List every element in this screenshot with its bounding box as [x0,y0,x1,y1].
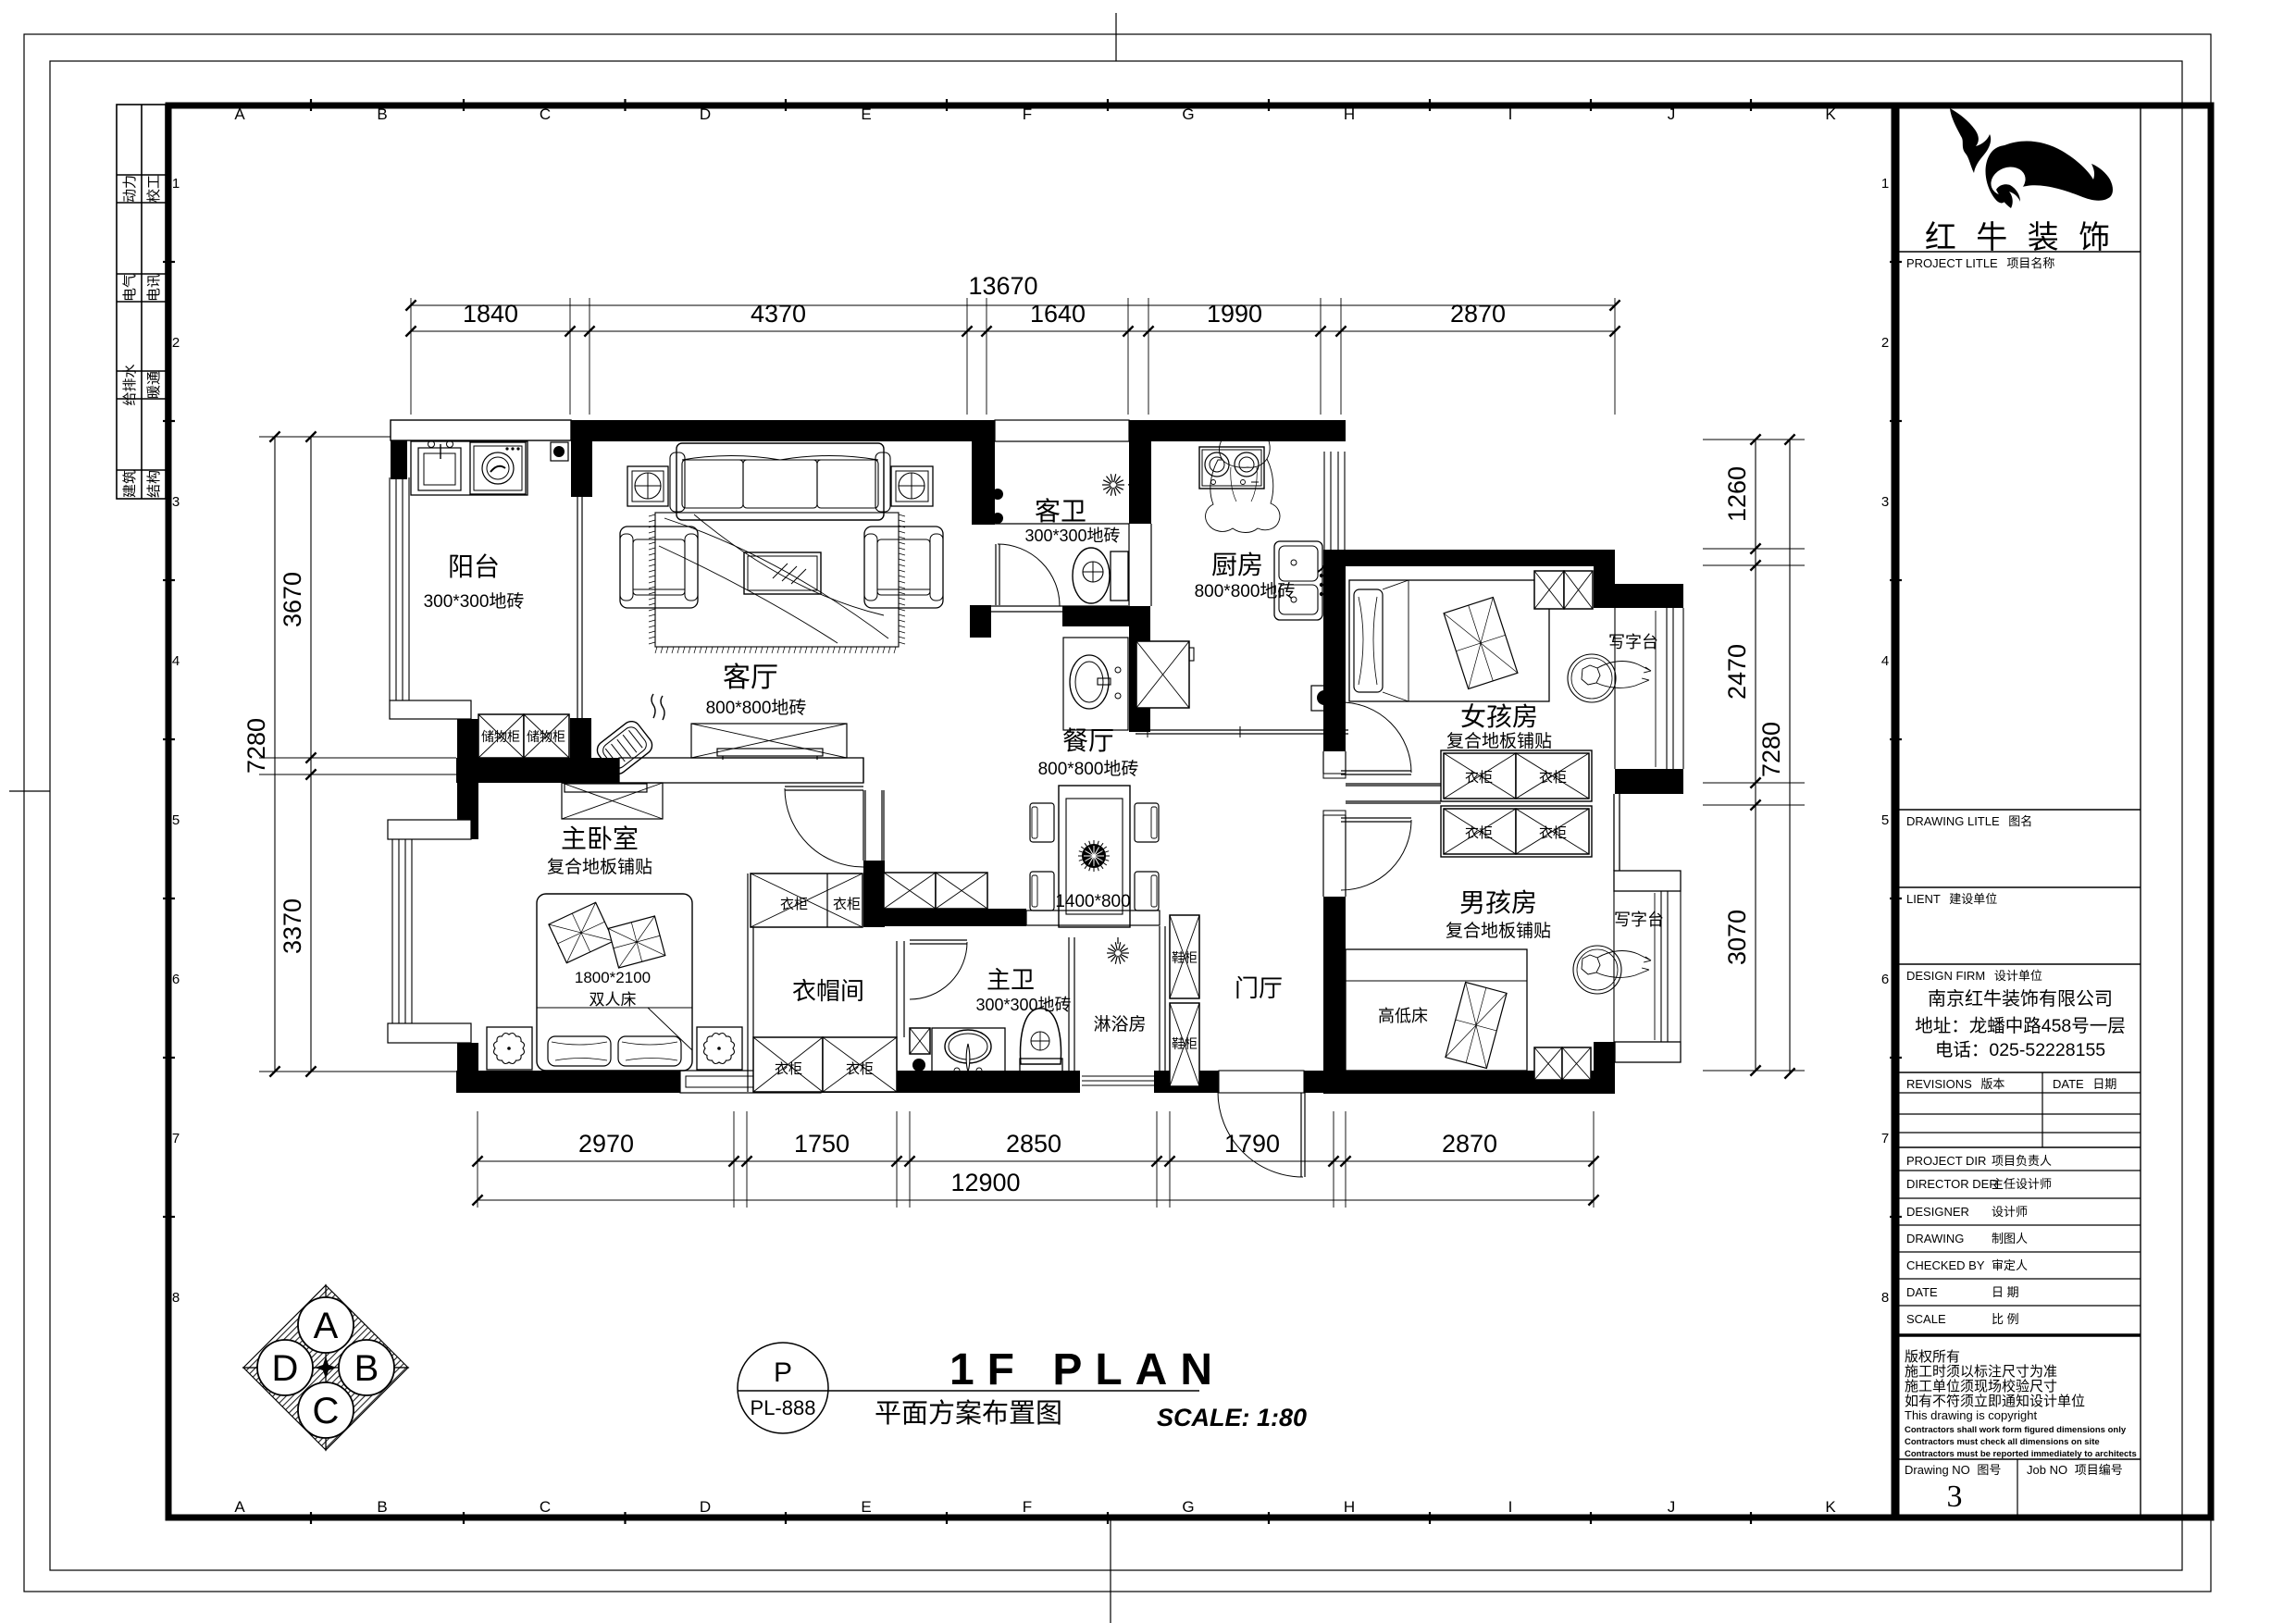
svg-text:E: E [861,105,871,123]
svg-text:阳台: 阳台 [448,552,500,581]
svg-text:PROJECT LITLE 项目名称: PROJECT LITLE 项目名称 [1906,256,2054,270]
svg-text:K: K [1825,105,1836,123]
svg-text:7280: 7280 [1757,722,1785,777]
svg-text:4370: 4370 [751,300,806,328]
svg-text:红 牛 装 饰: 红 牛 装 饰 [1925,220,2116,255]
svg-text:7: 7 [172,1131,180,1146]
svg-text:2870: 2870 [1450,300,1506,328]
svg-text:审定人: 审定人 [1992,1258,2028,1272]
svg-text:主卧室: 主卧室 [561,824,639,853]
svg-text:主任设计师: 主任设计师 [1992,1177,2052,1191]
svg-text:3670: 3670 [279,572,306,627]
svg-text:H: H [1344,1498,1355,1516]
svg-text:如有不符须立即通知设计单位: 如有不符须立即通知设计单位 [1905,1394,2085,1409]
svg-text:800*800地砖: 800*800地砖 [1038,759,1139,779]
svg-text:1640: 1640 [1030,300,1086,328]
svg-text:3: 3 [1881,494,1889,510]
svg-text:2: 2 [1881,335,1889,351]
svg-text:G: G [1182,1498,1194,1516]
svg-text:2870: 2870 [1442,1130,1497,1158]
svg-text:结构: 结构 [146,470,162,498]
svg-text:2850: 2850 [1006,1130,1061,1158]
svg-text:4: 4 [172,653,180,669]
svg-text:复合地板铺贴: 复合地板铺贴 [1446,921,1551,941]
svg-text:1260: 1260 [1723,466,1751,522]
svg-text:B: B [377,105,387,123]
svg-text:B: B [377,1498,387,1516]
svg-text:淋浴房: 淋浴房 [1093,1014,1146,1035]
svg-text:南京红牛装饰有限公司: 南京红牛装饰有限公司 [1928,988,2113,1010]
svg-text:6: 6 [172,972,180,987]
svg-text:制图人: 制图人 [1992,1232,2028,1245]
svg-text:DATE 日期: DATE 日期 [2053,1077,2116,1091]
svg-text:平面方案布置图: 平面方案布置图 [875,1398,1062,1429]
svg-text:K: K [1825,1498,1836,1516]
svg-text:衣柜: 衣柜 [1465,825,1493,841]
svg-text:客卫: 客卫 [1035,497,1086,526]
svg-text:4: 4 [1881,653,1889,669]
svg-text:2470: 2470 [1723,644,1751,700]
svg-text:3: 3 [172,494,180,510]
svg-text:13670: 13670 [968,272,1037,300]
svg-text:动力: 动力 [122,175,138,203]
svg-text:REVISIONS 版本: REVISIONS 版本 [1906,1077,2004,1091]
svg-text:Contractors must be reported i: Contractors must be reported immediately… [1905,1449,2137,1459]
svg-text:PL-888: PL-888 [751,1396,816,1419]
svg-text:6: 6 [1881,972,1889,987]
svg-text:暖通: 暖通 [146,371,162,399]
svg-text:餐厅: 餐厅 [1062,726,1114,755]
svg-text:800*800地砖: 800*800地砖 [706,698,807,718]
svg-text:D: D [700,105,711,123]
svg-text:1990: 1990 [1207,300,1262,328]
svg-text:H: H [1344,105,1355,123]
svg-text:鞋柜: 鞋柜 [1172,1036,1198,1051]
svg-text:衣柜: 衣柜 [833,897,861,912]
svg-text:鞋柜: 鞋柜 [1172,950,1198,965]
svg-text:衣柜: 衣柜 [1465,770,1493,786]
svg-text:设计师: 设计师 [1992,1205,2028,1219]
svg-text:This drawing is copyright: This drawing is copyright [1905,1408,2037,1422]
svg-text:3: 3 [1947,1480,1963,1514]
svg-text:I: I [1508,105,1513,123]
svg-text:版权所有: 版权所有 [1905,1349,1960,1365]
svg-text:1790: 1790 [1224,1130,1280,1158]
svg-text:D: D [272,1348,299,1389]
svg-text:I: I [1508,1498,1513,1516]
svg-text:高低床: 高低床 [1378,1007,1428,1025]
svg-text:LIENT 建设单位: LIENT 建设单位 [1906,892,1997,906]
svg-text:地址：龙蟠中路458号一层: 地址：龙蟠中路458号一层 [1915,1016,2126,1036]
svg-text:写字台: 写字台 [1614,911,1664,929]
svg-text:PROJECT DIR: PROJECT DIR [1906,1154,1986,1168]
svg-text:施工单位须现场校验尺寸: 施工单位须现场校验尺寸 [1905,1379,2057,1394]
svg-text:1400*800: 1400*800 [1055,892,1130,911]
svg-text:7280: 7280 [242,718,270,774]
svg-text:客厅: 客厅 [723,663,778,693]
svg-text:A: A [234,1498,245,1516]
svg-text:B: B [354,1348,379,1389]
svg-text:A: A [314,1306,339,1346]
svg-text:Job NO 项目编号: Job NO 项目编号 [2027,1463,2123,1477]
svg-text:G: G [1182,105,1194,123]
svg-text:1800*2100: 1800*2100 [575,969,651,986]
svg-text:2: 2 [172,335,180,351]
svg-text:5: 5 [1881,812,1889,828]
svg-text:男孩房: 男孩房 [1459,888,1537,917]
svg-text:8: 8 [172,1290,180,1306]
svg-text:Contractors must check all dim: Contractors must check all dimensions on… [1905,1437,2100,1447]
svg-text:复合地板铺贴: 复合地板铺贴 [1446,731,1552,751]
svg-text:衣柜: 衣柜 [775,1061,802,1077]
svg-text:建筑: 建筑 [122,470,138,498]
svg-text:双人床: 双人床 [590,991,637,1009]
svg-text:DESIGN FIRM 设计单位: DESIGN FIRM 设计单位 [1906,969,2042,983]
svg-text:2970: 2970 [578,1130,634,1158]
svg-text:Drawing NO 图号: Drawing NO 图号 [1905,1463,2001,1477]
svg-text:储物柜: 储物柜 [481,729,520,744]
svg-text:衣柜: 衣柜 [1539,825,1567,841]
svg-text:DRAWING LITLE 图名: DRAWING LITLE 图名 [1906,814,2032,828]
svg-text:SCALE: 1:80: SCALE: 1:80 [1157,1404,1307,1431]
svg-text:电讯: 电讯 [146,274,162,302]
svg-text:衣帽间: 衣帽间 [792,977,864,1005]
svg-text:A: A [234,105,245,123]
svg-text:8: 8 [1881,1290,1889,1306]
svg-text:DRAWING: DRAWING [1906,1232,1964,1245]
svg-text:比 例: 比 例 [1992,1312,2019,1326]
svg-text:Contractors shall work form fi: Contractors shall work form figured dime… [1905,1425,2127,1435]
svg-text:1: 1 [1881,176,1889,192]
svg-text:DESIGNER: DESIGNER [1906,1205,1969,1219]
svg-text:DATE: DATE [1906,1285,1938,1299]
svg-text:1840: 1840 [463,300,518,328]
svg-text:3370: 3370 [279,898,306,954]
svg-text:CHECKED BY: CHECKED BY [1906,1258,1985,1272]
svg-text:厨房: 厨房 [1211,551,1263,579]
svg-text:给排水: 给排水 [122,364,138,405]
svg-text:F: F [1023,105,1032,123]
svg-text:5: 5 [172,812,180,828]
svg-text:3070: 3070 [1723,910,1751,965]
svg-text:1750: 1750 [794,1130,850,1158]
svg-text:E: E [861,1498,871,1516]
svg-text:衣柜: 衣柜 [780,897,808,912]
svg-text:衣柜: 衣柜 [846,1061,874,1077]
svg-text:女孩房: 女孩房 [1460,702,1538,731]
svg-text:1: 1 [172,176,180,192]
svg-text:SCALE: SCALE [1906,1312,1946,1326]
svg-text:1F PLAN: 1F PLAN [949,1345,1225,1394]
svg-text:施工时须以标注尺寸为准: 施工时须以标注尺寸为准 [1905,1364,2057,1380]
svg-text:7: 7 [1881,1131,1889,1146]
svg-text:800*800地砖: 800*800地砖 [1195,581,1296,601]
svg-text:C: C [313,1391,340,1431]
svg-text:300*300地砖: 300*300地砖 [424,591,525,612]
svg-text:日 期: 日 期 [1992,1285,2019,1299]
svg-text:校工: 校工 [146,175,162,203]
svg-text:F: F [1023,1498,1032,1516]
svg-text:J: J [1668,105,1676,123]
svg-text:主卫: 主卫 [987,966,1035,994]
svg-text:电气: 电气 [122,274,138,302]
svg-text:300*300地砖: 300*300地砖 [975,996,1071,1014]
svg-text:电话：025-52228155: 电话：025-52228155 [1935,1040,2105,1060]
svg-text:写字台: 写字台 [1608,633,1658,651]
svg-text:J: J [1668,1498,1676,1516]
svg-text:C: C [540,105,551,123]
svg-text:D: D [700,1498,711,1516]
svg-text:项目负责人: 项目负责人 [1992,1154,2052,1168]
svg-text:储物柜: 储物柜 [527,729,565,744]
svg-text:衣柜: 衣柜 [1539,770,1567,786]
svg-text:300*300地砖: 300*300地砖 [1024,527,1120,545]
svg-text:复合地板铺贴: 复合地板铺贴 [547,857,652,877]
svg-text:P: P [774,1357,792,1388]
svg-text:DIRECTOR DER: DIRECTOR DER [1906,1177,1998,1191]
svg-text:12900: 12900 [950,1169,1020,1196]
svg-text:门厅: 门厅 [1235,974,1283,1002]
svg-text:C: C [540,1498,551,1516]
